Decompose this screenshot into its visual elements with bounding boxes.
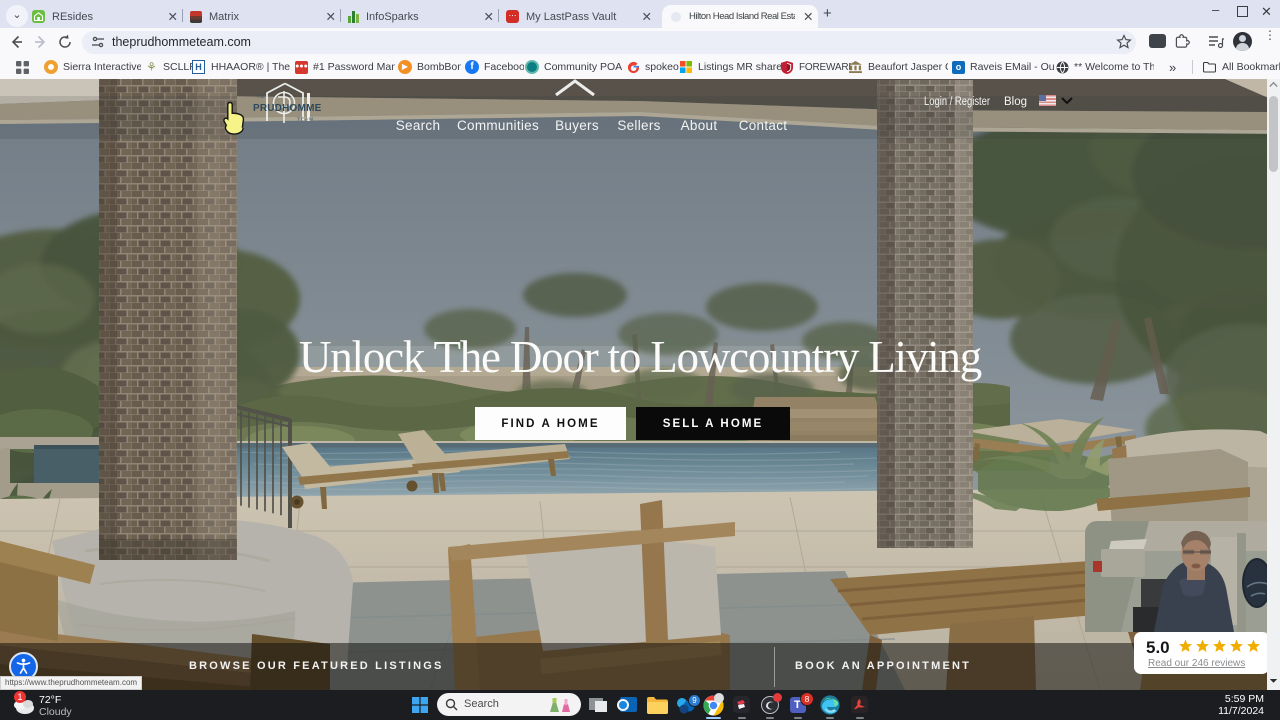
svg-text:THE: THE — [256, 94, 265, 99]
